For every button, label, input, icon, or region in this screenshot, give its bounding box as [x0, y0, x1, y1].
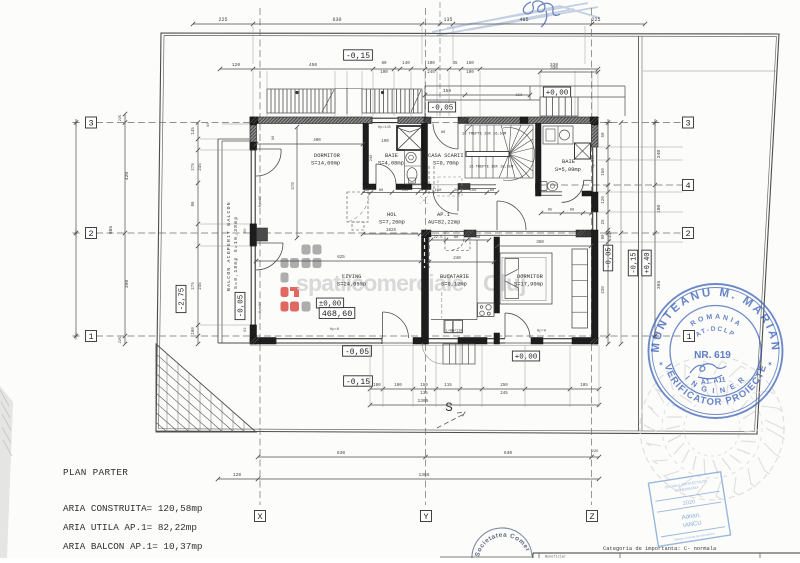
svg-text:NR. 619: NR. 619: [694, 350, 731, 361]
svg-text:245: 245: [199, 163, 203, 171]
svg-text:+0,00: +0,00: [515, 354, 538, 362]
svg-text:805: 805: [108, 226, 114, 235]
svg-text:630: 630: [337, 450, 346, 456]
svg-text:120: 120: [602, 196, 606, 204]
svg-text:80: 80: [379, 189, 384, 193]
svg-text:385: 385: [656, 281, 662, 290]
svg-text:100: 100: [192, 327, 196, 335]
svg-text:S=9,70mp: S=9,70mp: [433, 161, 459, 167]
svg-text:245: 245: [500, 392, 508, 396]
svg-text:60: 60: [490, 189, 495, 193]
svg-text:Categoria de importanta: C- no: Categoria de importanta: C- normala: [603, 546, 717, 552]
svg-text:100: 100: [394, 384, 402, 388]
svg-text:2: 2: [88, 229, 93, 239]
svg-text:80: 80: [381, 62, 387, 66]
svg-text:468,60: 468,60: [322, 309, 353, 319]
svg-text:ARIA UTILA AP.1= 82,22mp: ARIA UTILA AP.1= 82,22mp: [63, 522, 197, 533]
svg-text:90: 90: [602, 234, 606, 240]
svg-text:-0,15: -0,15: [346, 378, 370, 387]
svg-text:225: 225: [592, 450, 600, 454]
svg-text:S=5,09mp: S=5,09mp: [555, 167, 581, 173]
svg-text:240: 240: [656, 150, 662, 159]
svg-text:100: 100: [470, 189, 478, 193]
svg-text:16 TREPTE 19X 18,5CM: 16 TREPTE 19X 18,5CM: [469, 166, 513, 170]
svg-text:S: S: [445, 401, 453, 415]
svg-text:100: 100: [373, 384, 381, 388]
svg-text:1: 1: [88, 332, 93, 342]
svg-text:160: 160: [466, 62, 474, 66]
svg-text:22.5: 22.5: [433, 236, 443, 240]
svg-text:25: 25: [602, 219, 606, 225]
svg-text:60: 60: [244, 228, 248, 233]
svg-text:DORMITOR: DORMITOR: [314, 153, 341, 159]
svg-text:115: 115: [444, 384, 452, 388]
svg-text:S=14,60mp: S=14,60mp: [311, 161, 340, 167]
svg-text:AU=82,22mp: AU=82,22mp: [428, 220, 460, 226]
svg-text:100: 100: [427, 62, 435, 66]
svg-text:60: 60: [476, 236, 481, 240]
svg-text:275: 275: [192, 163, 196, 171]
svg-text:95: 95: [548, 209, 553, 213]
svg-text:-2,75: -2,75: [179, 287, 187, 310]
svg-text:105: 105: [580, 384, 588, 388]
svg-text:30: 30: [454, 189, 459, 193]
svg-text:2: 2: [685, 229, 690, 239]
svg-text:+0,40: +0,40: [644, 252, 652, 273]
svg-text:120: 120: [233, 472, 242, 478]
svg-text:BAIE: BAIE: [562, 159, 575, 165]
svg-text:275: 275: [192, 282, 196, 290]
svg-text:630: 630: [504, 450, 513, 456]
svg-text:630: 630: [332, 17, 341, 23]
svg-text:S=9,12mp: S=9,12mp: [441, 282, 467, 288]
svg-text:BAIE: BAIE: [385, 153, 398, 159]
svg-text:S=7,26mp: S=7,26mp: [379, 220, 405, 226]
svg-text:-0,05: -0,05: [238, 294, 246, 317]
svg-text:HOL: HOL: [387, 212, 397, 218]
svg-text:25: 25: [419, 189, 424, 193]
svg-text:3: 3: [88, 119, 93, 129]
svg-text:3: 3: [685, 119, 690, 129]
svg-text:80: 80: [454, 236, 459, 240]
svg-text:100: 100: [466, 71, 474, 75]
svg-text:45: 45: [452, 62, 458, 66]
svg-text:PLAN PARTER: PLAN PARTER: [63, 467, 128, 478]
svg-text:1025: 1025: [386, 229, 397, 233]
svg-text:-0,05: -0,05: [345, 348, 369, 357]
svg-text:250: 250: [500, 384, 508, 388]
svg-text:Hp=145: Hp=145: [378, 126, 391, 130]
svg-text:Y: Y: [423, 512, 428, 522]
svg-text:160: 160: [602, 168, 606, 176]
svg-text:450: 450: [309, 62, 318, 68]
svg-text:350: 350: [536, 241, 544, 245]
svg-text:1365: 1365: [418, 472, 429, 478]
svg-text:✶: ✶: [767, 360, 773, 368]
svg-text:225: 225: [119, 336, 123, 344]
svg-text:245: 245: [609, 233, 613, 241]
svg-text:100: 100: [380, 71, 388, 75]
svg-text:145: 145: [192, 127, 196, 135]
svg-text:63: 63: [244, 327, 248, 332]
svg-text:+0,00: +0,00: [546, 90, 569, 98]
svg-text:135: 135: [443, 17, 452, 23]
svg-text:Hp=0: Hp=0: [537, 330, 547, 334]
svg-text:225: 225: [119, 114, 123, 122]
svg-text:240: 240: [370, 154, 374, 162]
svg-text:100: 100: [435, 189, 443, 193]
svg-text:AP.1: AP.1: [437, 212, 450, 218]
svg-text:1: 1: [686, 332, 691, 342]
svg-text:S=4,08mp: S=4,08mp: [378, 161, 404, 167]
svg-text:10 TREPTE 20X 16,5CM: 10 TREPTE 20X 16,5CM: [462, 133, 506, 137]
svg-text:90: 90: [272, 135, 276, 140]
svg-text:X: X: [257, 512, 262, 522]
svg-text:150: 150: [420, 384, 428, 388]
svg-text:420: 420: [124, 172, 130, 181]
svg-text:190: 190: [381, 140, 389, 144]
svg-text:CASA SCARII: CASA SCARII: [428, 153, 464, 159]
svg-text:370: 370: [292, 182, 296, 190]
svg-text:-0,15: -0,15: [346, 52, 370, 61]
svg-text:80: 80: [570, 209, 575, 213]
svg-text:Hp=145: Hp=145: [592, 155, 596, 168]
svg-text:390: 390: [124, 280, 130, 289]
svg-text:spatiicomerciale: spatiicomerciale: [296, 270, 463, 296]
svg-text:-0,05: -0,05: [606, 247, 614, 268]
svg-text:L+Hp=110: L+Hp=110: [446, 330, 462, 334]
svg-text:86: 86: [192, 201, 196, 207]
svg-text:80: 80: [441, 131, 446, 135]
svg-text:1305: 1305: [417, 398, 428, 404]
svg-text:Beneficiar: Beneficiar: [545, 555, 566, 559]
svg-text:30: 30: [365, 189, 370, 193]
svg-text:Hp=90: Hp=90: [259, 301, 263, 313]
svg-text:150: 150: [443, 88, 452, 94]
svg-text:225: 225: [218, 17, 227, 23]
svg-text:Hp=90: Hp=90: [259, 195, 263, 207]
svg-text:90: 90: [207, 122, 211, 127]
svg-text:S=24,05mp: S=24,05mp: [337, 282, 366, 288]
svg-text:150: 150: [516, 94, 524, 98]
svg-text:135: 135: [420, 392, 428, 396]
svg-text:-0,05: -0,05: [431, 105, 454, 113]
svg-text:245: 245: [427, 71, 435, 75]
svg-text:140: 140: [402, 62, 410, 66]
svg-text:100: 100: [402, 189, 410, 193]
svg-text:245: 245: [199, 282, 203, 290]
svg-text:120: 120: [232, 62, 241, 68]
svg-text:DORMITOR: DORMITOR: [517, 274, 544, 280]
svg-text:-0,15: -0,15: [631, 252, 639, 273]
svg-text:225: 225: [591, 17, 600, 23]
svg-text:S=9,18mp S=10,38mp: S=9,18mp S=10,38mp: [233, 216, 239, 289]
svg-text:ARIA CONSTRUITA= 120,58mp: ARIA CONSTRUITA= 120,58mp: [63, 503, 202, 514]
svg-text:400: 400: [313, 139, 321, 143]
svg-text:240: 240: [453, 257, 461, 261]
svg-text:430: 430: [602, 286, 606, 294]
svg-text:330: 330: [550, 67, 558, 71]
svg-text:LIVING: LIVING: [342, 274, 361, 280]
svg-text:495: 495: [519, 17, 528, 23]
svg-text:ARIA BALCON AP.1= 10,37mp: ARIA BALCON AP.1= 10,37mp: [63, 541, 202, 552]
svg-text:Hp=0: Hp=0: [330, 328, 340, 332]
svg-text:BUCATARIE: BUCATARIE: [440, 274, 469, 280]
svg-text:✶: ✶: [658, 360, 664, 368]
svg-text:4: 4: [685, 181, 690, 191]
svg-text:Z: Z: [589, 512, 594, 522]
svg-text:50: 50: [602, 132, 606, 138]
svg-text:625: 625: [337, 256, 345, 260]
